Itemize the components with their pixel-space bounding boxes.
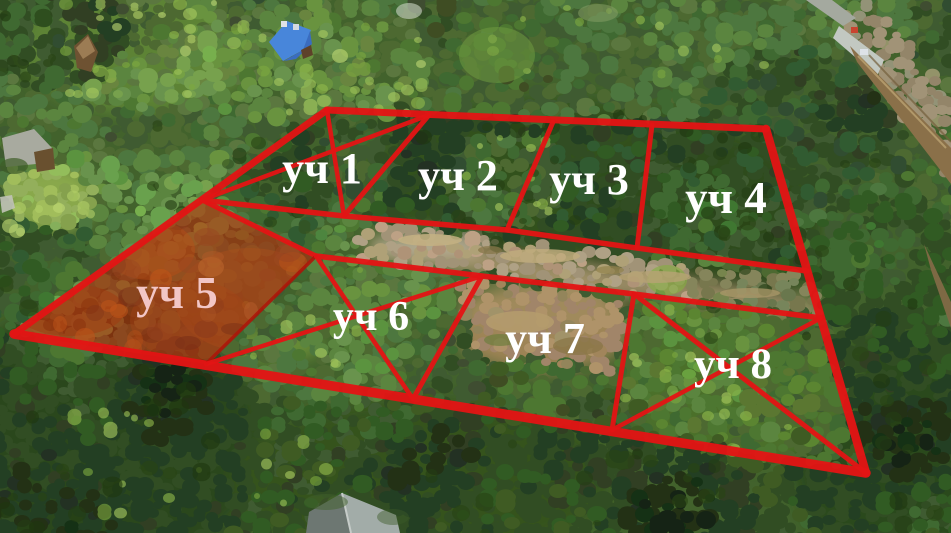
svg-text:уч 5: уч 5: [136, 268, 218, 318]
svg-text:уч 3: уч 3: [549, 155, 629, 204]
svg-text:уч 1: уч 1: [282, 144, 362, 193]
svg-text:уч 6: уч 6: [333, 294, 409, 340]
svg-text:уч 4: уч 4: [685, 173, 767, 223]
svg-text:уч 2: уч 2: [418, 151, 498, 200]
svg-text:уч 8: уч 8: [694, 341, 772, 388]
svg-text:уч 7: уч 7: [505, 314, 585, 363]
